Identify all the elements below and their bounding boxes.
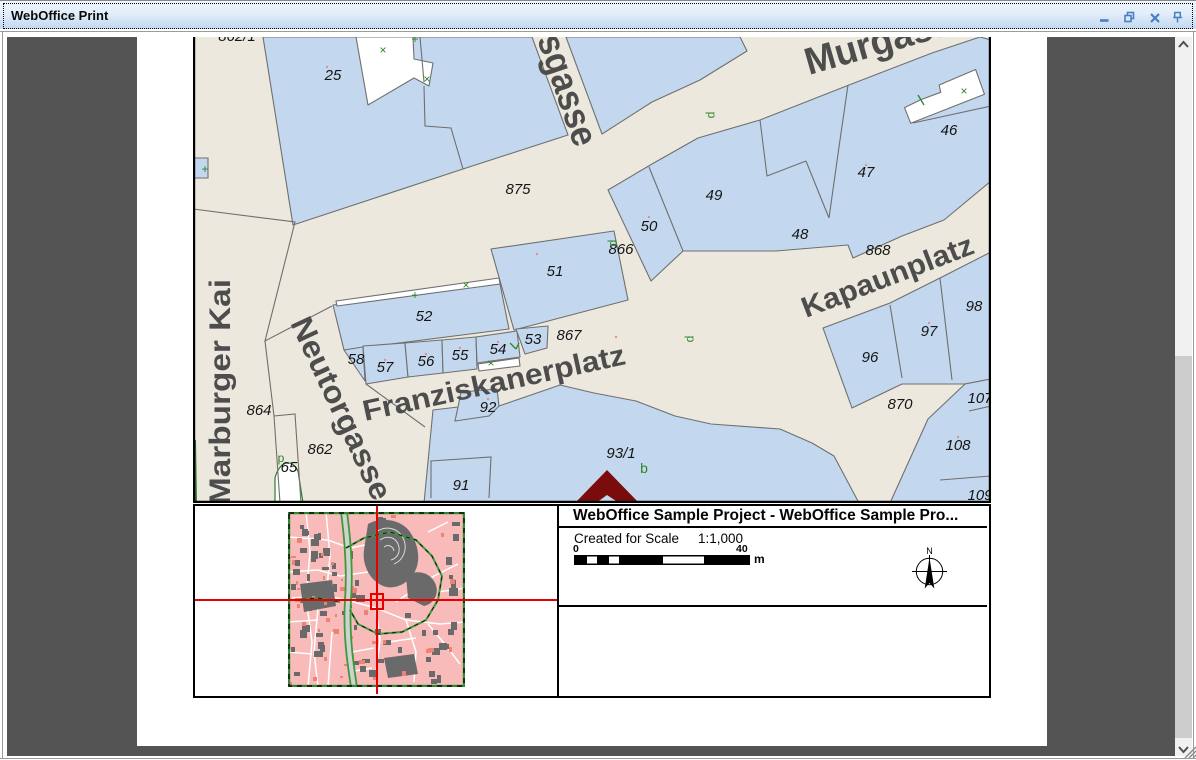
svg-text:×: ×	[379, 43, 386, 57]
svg-text:96: 96	[862, 349, 879, 366]
svg-text:98: 98	[966, 298, 983, 315]
svg-text:×: ×	[960, 84, 967, 98]
svg-text:97: 97	[921, 323, 938, 340]
svg-text:109: 109	[967, 487, 991, 503]
svg-text:93/1: 93/1	[606, 445, 635, 462]
svg-text:108: 108	[945, 437, 971, 454]
svg-text:875: 875	[505, 181, 531, 198]
svg-text:×: ×	[462, 278, 469, 292]
svg-text:51: 51	[547, 263, 564, 280]
svg-text:p: p	[684, 336, 698, 343]
svg-text:53: 53	[525, 331, 542, 348]
svg-text:58: 58	[348, 351, 365, 368]
svg-text:48: 48	[792, 226, 809, 243]
svg-text:+: +	[411, 288, 418, 302]
svg-text:N: N	[926, 546, 933, 556]
svg-text:55: 55	[452, 347, 469, 364]
svg-text:×: ×	[487, 356, 494, 370]
svg-text:b: b	[640, 460, 648, 476]
svg-text:870: 870	[887, 396, 913, 413]
svg-text:862: 862	[307, 441, 333, 458]
svg-text:867: 867	[556, 327, 582, 344]
svg-text:+: +	[201, 162, 208, 176]
svg-text:+: +	[411, 37, 418, 46]
svg-text:46: 46	[941, 122, 958, 139]
svg-text:864: 864	[246, 402, 271, 419]
svg-text:p: p	[278, 451, 285, 465]
svg-text:×: ×	[423, 72, 430, 86]
svg-text:52: 52	[416, 308, 433, 325]
svg-text:47: 47	[858, 164, 875, 181]
svg-text:862/1: 862/1	[218, 37, 256, 45]
svg-text:49: 49	[706, 187, 723, 204]
svg-text:107: 107	[967, 390, 991, 407]
svg-text:91: 91	[453, 477, 470, 494]
svg-text:Marburger Kai: Marburger Kai	[204, 279, 237, 503]
svg-text:868: 868	[865, 242, 891, 259]
svg-text:25: 25	[324, 67, 342, 84]
svg-text:92: 92	[480, 399, 497, 416]
svg-text:p: p	[705, 112, 719, 119]
svg-text:50: 50	[641, 218, 658, 235]
svg-text:p: p	[607, 240, 621, 247]
svg-text:56: 56	[418, 353, 435, 370]
svg-text:57: 57	[377, 359, 394, 376]
